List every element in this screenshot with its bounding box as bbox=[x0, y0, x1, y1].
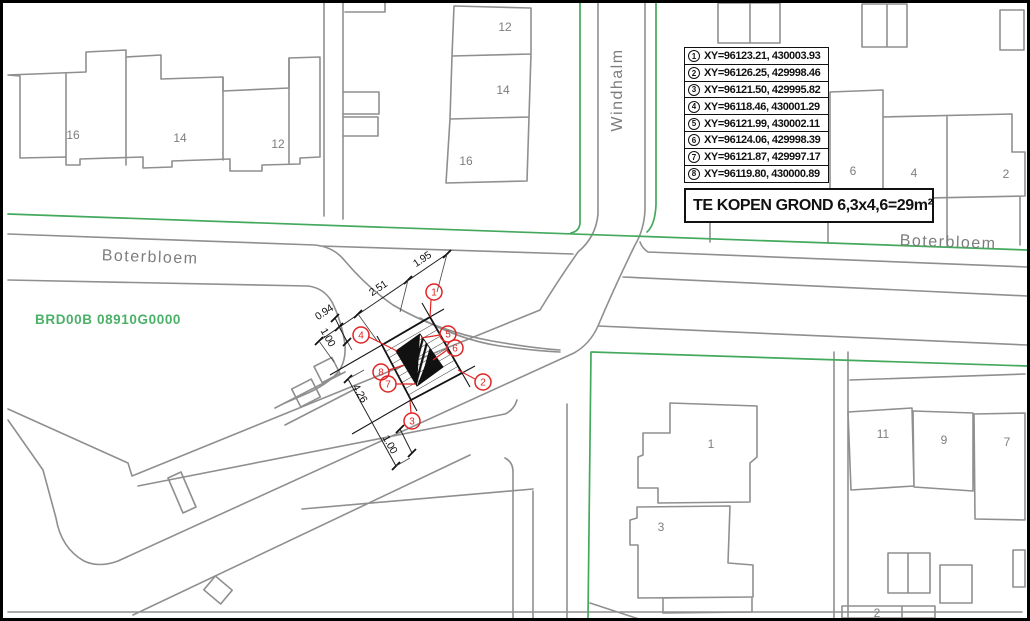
house-number-se-3: 3 bbox=[658, 520, 665, 534]
point-coordinates: XY=96121.87, 429997.17 bbox=[704, 151, 820, 163]
house-number-ne-2: 2 bbox=[1003, 167, 1010, 181]
house-number-ne-6: 6 bbox=[850, 164, 857, 178]
marker-label-6: 6 bbox=[452, 344, 458, 355]
marker-label-3: 3 bbox=[409, 417, 415, 428]
house-number-se-7: 7 bbox=[1004, 435, 1011, 449]
point-coordinates: XY=96124.06, 429998.39 bbox=[704, 134, 820, 146]
street-label-boterbloem-west: Boterbloem bbox=[101, 247, 198, 267]
cadastral-map: 1.95 2.51 0.94 1.00 4.26 1.00 1 2 3 4 5 … bbox=[0, 0, 1030, 621]
table-row: 2 XY=96126.25, 429998.46 bbox=[684, 64, 829, 83]
dim-label-426: 4.26 bbox=[350, 382, 370, 405]
parcel-id-label: BRD00B 08910G0000 bbox=[35, 312, 181, 327]
house-number-bottom-2: 2 bbox=[874, 606, 881, 620]
table-row: 4 XY=96118.46, 430001.29 bbox=[684, 97, 829, 116]
point-coordinates: XY=96123.21, 430003.93 bbox=[704, 50, 820, 62]
house-number-n-16: 16 bbox=[459, 154, 473, 168]
green-windhalm-west bbox=[571, 0, 580, 233]
map-labels: Boterbloem Windhalm Boterbloem BRD00B 08… bbox=[35, 20, 1011, 620]
shed-strip-west-of-plot bbox=[275, 372, 355, 425]
green-south-horizontal bbox=[592, 352, 1027, 366]
point-number-badge: 5 bbox=[688, 118, 700, 130]
sale-annotation-text: TE KOPEN GROND 6,3x4,6=29m² bbox=[693, 197, 933, 215]
table-row: 3 XY=96121.50, 429995.82 bbox=[684, 81, 829, 100]
garages-ne bbox=[718, 3, 1024, 50]
outbuildings-se bbox=[842, 550, 1025, 618]
house-3 bbox=[630, 506, 753, 613]
house-block-nw-dividers bbox=[66, 57, 289, 165]
point-number-badge: 3 bbox=[688, 84, 700, 96]
house-number-ne-4: 4 bbox=[911, 166, 918, 180]
table-row: 5 XY=96121.99, 430002.11 bbox=[684, 114, 829, 133]
dim-label-100-left: 1.00 bbox=[318, 326, 338, 349]
house-number-nw-16: 16 bbox=[66, 128, 80, 142]
marker-label-5: 5 bbox=[445, 330, 451, 341]
house-block-se bbox=[848, 374, 1025, 520]
point-coordinates: XY=96126.25, 429998.46 bbox=[704, 67, 820, 79]
buildings-and-roads bbox=[8, 0, 1027, 620]
point-coordinates: XY=96121.50, 429995.82 bbox=[704, 84, 820, 96]
point-coordinates: XY=96121.99, 430002.11 bbox=[704, 118, 820, 130]
shed-square-2 bbox=[314, 357, 340, 382]
street-label-windhalm: Windhalm bbox=[609, 48, 626, 131]
street-label-boterbloem-east: Boterbloem bbox=[899, 232, 996, 252]
dim-label-251: 2.51 bbox=[367, 278, 390, 299]
marker-label-7: 7 bbox=[385, 380, 391, 391]
house-number-se-1: 1 bbox=[708, 437, 715, 451]
map-drawing: 1.95 2.51 0.94 1.00 4.26 1.00 1 2 3 4 5 … bbox=[0, 0, 1030, 621]
table-row: 1 XY=96123.21, 430003.93 bbox=[684, 47, 829, 66]
house-number-nw-12: 12 bbox=[271, 137, 285, 151]
sw-road-inner bbox=[8, 400, 1022, 620]
marker-label-4: 4 bbox=[358, 331, 364, 342]
dim-label-195: 1.95 bbox=[411, 249, 434, 270]
windhalm-west-curb bbox=[8, 0, 598, 476]
se-road bbox=[834, 352, 848, 618]
sale-plot bbox=[330, 303, 475, 434]
point-coordinates: XY=96119.80, 430000.89 bbox=[704, 168, 820, 180]
house-block-nw bbox=[8, 50, 320, 171]
table-row: 6 XY=96124.06, 429998.39 bbox=[684, 131, 829, 150]
house-number-se-9: 9 bbox=[941, 433, 948, 447]
house-block-ne bbox=[830, 90, 1025, 200]
point-number-badge: 2 bbox=[688, 67, 700, 79]
drawing-border bbox=[2, 2, 1029, 620]
dim-label-100-bottom: 1.00 bbox=[380, 433, 400, 456]
house-number-se-11: 11 bbox=[877, 427, 890, 441]
north-road-sheds bbox=[343, 2, 385, 136]
marker-label-2: 2 bbox=[480, 378, 486, 389]
house-number-n-14: 14 bbox=[496, 83, 510, 97]
green-south-vertical bbox=[588, 352, 591, 618]
north-road bbox=[324, 0, 343, 219]
point-number-badge: 4 bbox=[688, 101, 700, 113]
point-coordinates: XY=96118.46, 430001.29 bbox=[704, 101, 820, 113]
point-number-badge: 1 bbox=[688, 50, 700, 62]
table-row: 7 XY=96121.87, 429997.17 bbox=[684, 148, 829, 167]
marker-label-8: 8 bbox=[378, 368, 384, 379]
cadastral-boundaries bbox=[8, 0, 1027, 618]
house-number-n-12: 12 bbox=[498, 20, 512, 34]
green-windhalm-east bbox=[647, 0, 656, 232]
coordinate-table: 1 XY=96123.21, 430003.93 2 XY=96126.25, … bbox=[684, 47, 829, 183]
point-number-badge: 7 bbox=[688, 151, 700, 163]
point-number-badge: 6 bbox=[688, 134, 700, 146]
point-number-badge: 8 bbox=[688, 168, 700, 180]
house-1 bbox=[638, 403, 757, 503]
sale-annotation-box: TE KOPEN GROND 6,3x4,6=29m² bbox=[684, 188, 934, 223]
house-number-nw-14: 14 bbox=[173, 131, 187, 145]
table-row: 8 XY=96119.80, 430000.89 bbox=[684, 165, 829, 184]
marker-label-1: 1 bbox=[431, 288, 437, 299]
boterbloem-east-road bbox=[598, 242, 1027, 345]
